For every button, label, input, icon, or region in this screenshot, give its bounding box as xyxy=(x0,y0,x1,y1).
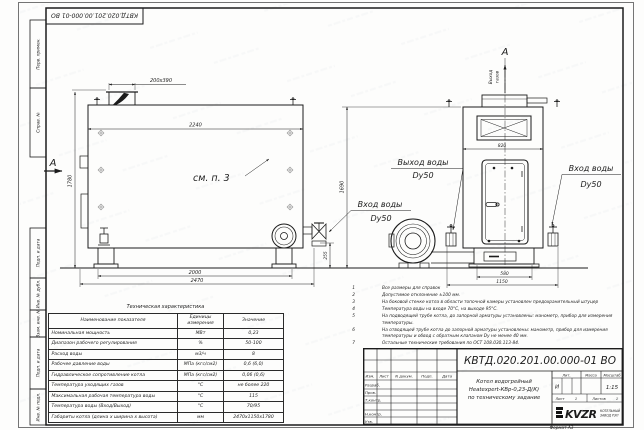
dim-height: 1780 xyxy=(68,175,74,188)
spec-cell-name: Температура воды (Вход/Выход) xyxy=(49,402,178,413)
spec-cell-name: Номинальная мощность xyxy=(49,328,178,339)
spec-col-value: Значение xyxy=(224,313,284,328)
spec-cell-name: Гидравлическое сопротивление котла xyxy=(49,370,178,381)
section-marker-a: А xyxy=(49,158,57,169)
gas-outlet-label: Выход xyxy=(488,70,494,85)
spec-cell-value: 2470х1150х1780 xyxy=(224,412,284,423)
org-name-line1: КОТЕЛЬНЫЙ xyxy=(600,408,621,413)
svg-text:И: И xyxy=(555,385,559,391)
spec-cell-value: 0,06 (0,6) xyxy=(224,370,284,381)
dim-side-base: 580 xyxy=(500,271,509,277)
spec-row: Расход водым3/ч8 xyxy=(49,349,284,360)
spec-cell-name: Габариты котла (длина х ширина х высота) xyxy=(49,412,178,423)
note-item: 3На боковой стенке котла в области топоч… xyxy=(349,300,621,306)
dim-length: 2470 xyxy=(191,278,204,284)
svg-text:Разраб.: Разраб. xyxy=(365,383,380,388)
title-block-headers: Изм. Лист N докум. Подп. Дата Разраб. Пр… xyxy=(365,374,453,425)
spec-cell-units: МПа (кгс/см2) xyxy=(178,360,224,371)
note-item: 5На подводящей трубе котла, до запорной … xyxy=(349,314,621,327)
svg-text:Heatexpert-КВр-0,23-Д(К): Heatexpert-КВр-0,23-Д(К) xyxy=(469,387,539,393)
spec-cell-name: Рабочее давление воды xyxy=(49,360,178,371)
spec-cell-value: 70/95 xyxy=(224,402,284,413)
svg-text:Пров.: Пров. xyxy=(365,390,376,395)
note-reference: см. п. 3 xyxy=(193,173,230,184)
spec-cell-value: 115 xyxy=(224,391,284,402)
svg-text:Масштаб: Масштаб xyxy=(603,374,621,378)
spec-cell-units: % xyxy=(178,339,224,350)
spec-row: Температура воды (Вход/Выход)°С70/95 xyxy=(49,402,284,413)
spec-cell-units: МВт xyxy=(178,328,224,339)
spec-row: Номинальная мощностьМВт0,23 xyxy=(49,328,284,339)
svg-text:Лист: Лист xyxy=(554,397,565,401)
svg-text:по техническому задание: по техническому задание xyxy=(468,395,541,401)
svg-text:Перв. примен.: Перв. примен. xyxy=(36,38,41,69)
logo-text: KVZR xyxy=(565,408,597,421)
svg-text:Подп. и дата: Подп. и дата xyxy=(36,238,41,267)
svg-text:Выход воды: Выход воды xyxy=(398,158,449,167)
product-name: Котел водогрейный Heatexpert-КВр-0,23-Д(… xyxy=(468,379,541,401)
dim-supports: 2000 xyxy=(189,270,202,276)
spec-cell-units: м3/ч xyxy=(178,349,224,360)
view-marker-a: А xyxy=(501,47,509,58)
spec-cell-name: Максимальная рабочая температура воды xyxy=(49,391,178,402)
svg-text:Н.контр.: Н.контр. xyxy=(365,412,382,417)
spec-cell-units: °С xyxy=(178,381,224,392)
format-label: Формат А3 xyxy=(500,425,623,430)
svg-text:Т.контр.: Т.контр. xyxy=(365,398,381,403)
spec-row: Диапазон рабочего регулирования%50-100 xyxy=(49,339,284,350)
svg-text:1:15: 1:15 xyxy=(606,385,619,391)
svg-text:Изм.: Изм. xyxy=(366,374,375,379)
svg-text:Dy50: Dy50 xyxy=(370,214,391,223)
spec-cell-name: Расход воды xyxy=(49,349,178,360)
spec-table-title: Техническая характеристика xyxy=(48,304,283,310)
svg-text:N докум.: N докум. xyxy=(395,374,413,379)
note-item: 6На отводящей трубе котла до запорной ар… xyxy=(349,328,621,341)
spec-row: Гидравлическое сопротивление котлаМПа (к… xyxy=(49,370,284,381)
svg-text:Подп. и дата: Подп. и дата xyxy=(36,348,41,377)
svg-text:Справ. №: Справ. № xyxy=(36,112,41,133)
spec-cell-value: 0,23 xyxy=(224,328,284,339)
dim-side-height: 1690 xyxy=(340,181,346,194)
technical-notes: 1Все размеры для справок 2Допустимое отк… xyxy=(349,286,621,348)
svg-text:Лист: Лист xyxy=(378,374,389,379)
dim-chimney: 200х390 xyxy=(150,78,172,84)
doc-number: КВТД.020.201.00.000-01 ВО xyxy=(464,355,616,367)
top-stamp-number: КВТД.020.201.00.000-01 ВО xyxy=(51,12,138,19)
drawing-sheet: КВТД.020.201.00.000-01 ВО Перв. примен. … xyxy=(0,0,644,430)
spec-cell-value: 0,6 (6,0) xyxy=(224,360,284,371)
spec-cell-units: МПа (кгс/см2) xyxy=(178,370,224,381)
svg-text:Инв. № подл.: Инв. № подл. xyxy=(36,393,41,422)
spec-cell-units: °С xyxy=(178,402,224,413)
svg-text:Масса: Масса xyxy=(585,374,596,378)
spec-table-block: Техническая характеристика Наименование … xyxy=(48,304,283,423)
svg-text:Лит.: Лит. xyxy=(561,374,570,378)
spec-row: Максимальная рабочая температура воды°С1… xyxy=(49,391,284,402)
svg-text:1: 1 xyxy=(575,397,577,401)
svg-text:Вход воды: Вход воды xyxy=(358,200,403,209)
spec-cell-name: Диапазон рабочего регулирования xyxy=(49,339,178,350)
company-logo: KVZR КОТЕЛЬНЫЙ ЗАВОД РЭП xyxy=(556,407,621,421)
svg-text:Взам. инв. №: Взам. инв. № xyxy=(36,309,41,338)
note-item: 7Остальные технические требования по ОСТ… xyxy=(349,341,621,347)
svg-text:Листов: Листов xyxy=(591,397,605,401)
svg-text:Котел водогрейный: Котел водогрейный xyxy=(476,379,532,385)
dim-side-top: 820 xyxy=(498,143,507,149)
dim-width-top: 2240 xyxy=(189,123,202,129)
svg-text:Утв.: Утв. xyxy=(365,419,373,424)
spec-cell-value: 50-100 xyxy=(224,339,284,350)
spec-cell-units: мм xyxy=(178,412,224,423)
note-item: 2Допустимое отклонение ±100 мм. xyxy=(349,293,621,299)
org-name-line2: ЗАВОД РЭП xyxy=(600,414,619,418)
dim-valve-height: 255 xyxy=(323,251,329,259)
spec-header-row: Наименование показателя Единицы измерени… xyxy=(49,313,284,328)
svg-text:Инв. № дубл.: Инв. № дубл. xyxy=(36,280,41,309)
svg-text:1: 1 xyxy=(616,397,618,401)
note-item: 4Температура воды на входе 70°С, на выхо… xyxy=(349,307,621,313)
spec-row: Рабочее давление водыМПа (кгс/см2)0,6 (6… xyxy=(49,360,284,371)
spec-row: Габариты котла (длина х ширина х высота)… xyxy=(49,412,284,423)
svg-text:Подп.: Подп. xyxy=(421,374,433,379)
spec-col-name: Наименование показателя xyxy=(49,313,178,328)
svg-text:Dy50: Dy50 xyxy=(580,180,601,189)
gas-outlet-label2: газов xyxy=(496,70,501,83)
spec-cell-value: 8 xyxy=(224,349,284,360)
spec-cell-name: Температура уходящих газов xyxy=(49,381,178,392)
lit-mass-scale: Лит. Масса Масштаб И 1:15 Лист 1 Листов … xyxy=(554,374,621,402)
title-block: КВТД.020.201.00.000-01 ВО Изм. Лист N до… xyxy=(363,348,623,425)
svg-text:Вход воды: Вход воды xyxy=(569,164,614,173)
spec-cell-value: не более 220 xyxy=(224,381,284,392)
spec-col-units: Единицы измерения xyxy=(178,313,224,328)
note-item: 1Все размеры для справок xyxy=(349,286,621,292)
dim-side-width: 1150 xyxy=(496,279,508,285)
svg-text:Dy50: Dy50 xyxy=(412,171,433,180)
spec-table: Наименование показателя Единицы измерени… xyxy=(48,313,284,424)
svg-text:Дата: Дата xyxy=(441,374,453,379)
spec-row: Температура уходящих газов°Сне более 220 xyxy=(49,381,284,392)
spec-cell-units: °С xyxy=(178,391,224,402)
